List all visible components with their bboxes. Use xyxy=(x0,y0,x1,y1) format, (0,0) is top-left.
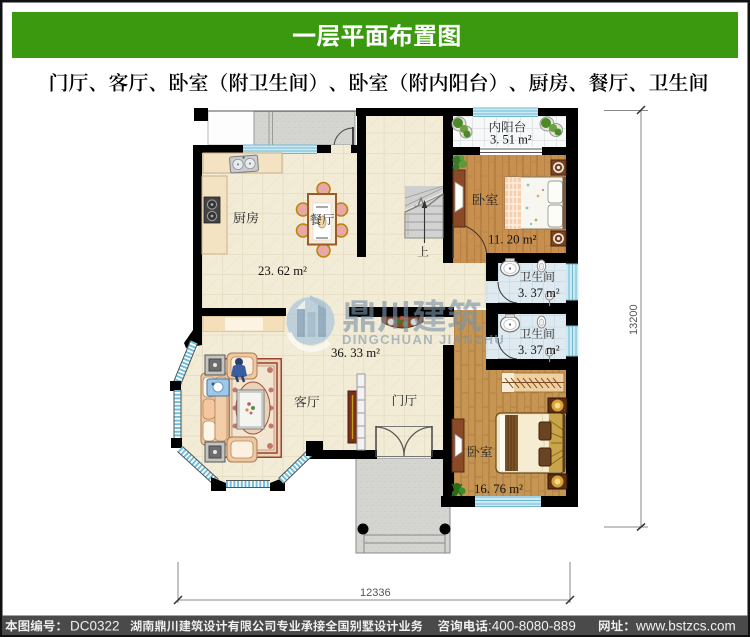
svg-text:3. 51 m²: 3. 51 m² xyxy=(490,133,532,147)
svg-text:11. 20 m²: 11. 20 m² xyxy=(488,233,537,247)
svg-text:12336: 12336 xyxy=(360,587,391,599)
svg-text:13200: 13200 xyxy=(628,304,640,335)
svg-text:3. 37 m²: 3. 37 m² xyxy=(518,286,560,300)
svg-text:DINGCHUAN JIANZHU: DINGCHUAN JIANZHU xyxy=(342,332,505,347)
svg-text:36. 33 m²: 36. 33 m² xyxy=(331,346,380,360)
svg-text:23. 62 m²: 23. 62 m² xyxy=(258,264,307,278)
svg-text:3. 37 m²: 3. 37 m² xyxy=(518,343,560,357)
svg-text:16. 76 m²: 16. 76 m² xyxy=(474,482,523,496)
svg-text:www.bstzcs.com: www.bstzcs.com xyxy=(635,619,736,634)
svg-text:DC0322: DC0322 xyxy=(70,619,120,634)
svg-text::400-8080-889: :400-8080-889 xyxy=(488,619,576,634)
